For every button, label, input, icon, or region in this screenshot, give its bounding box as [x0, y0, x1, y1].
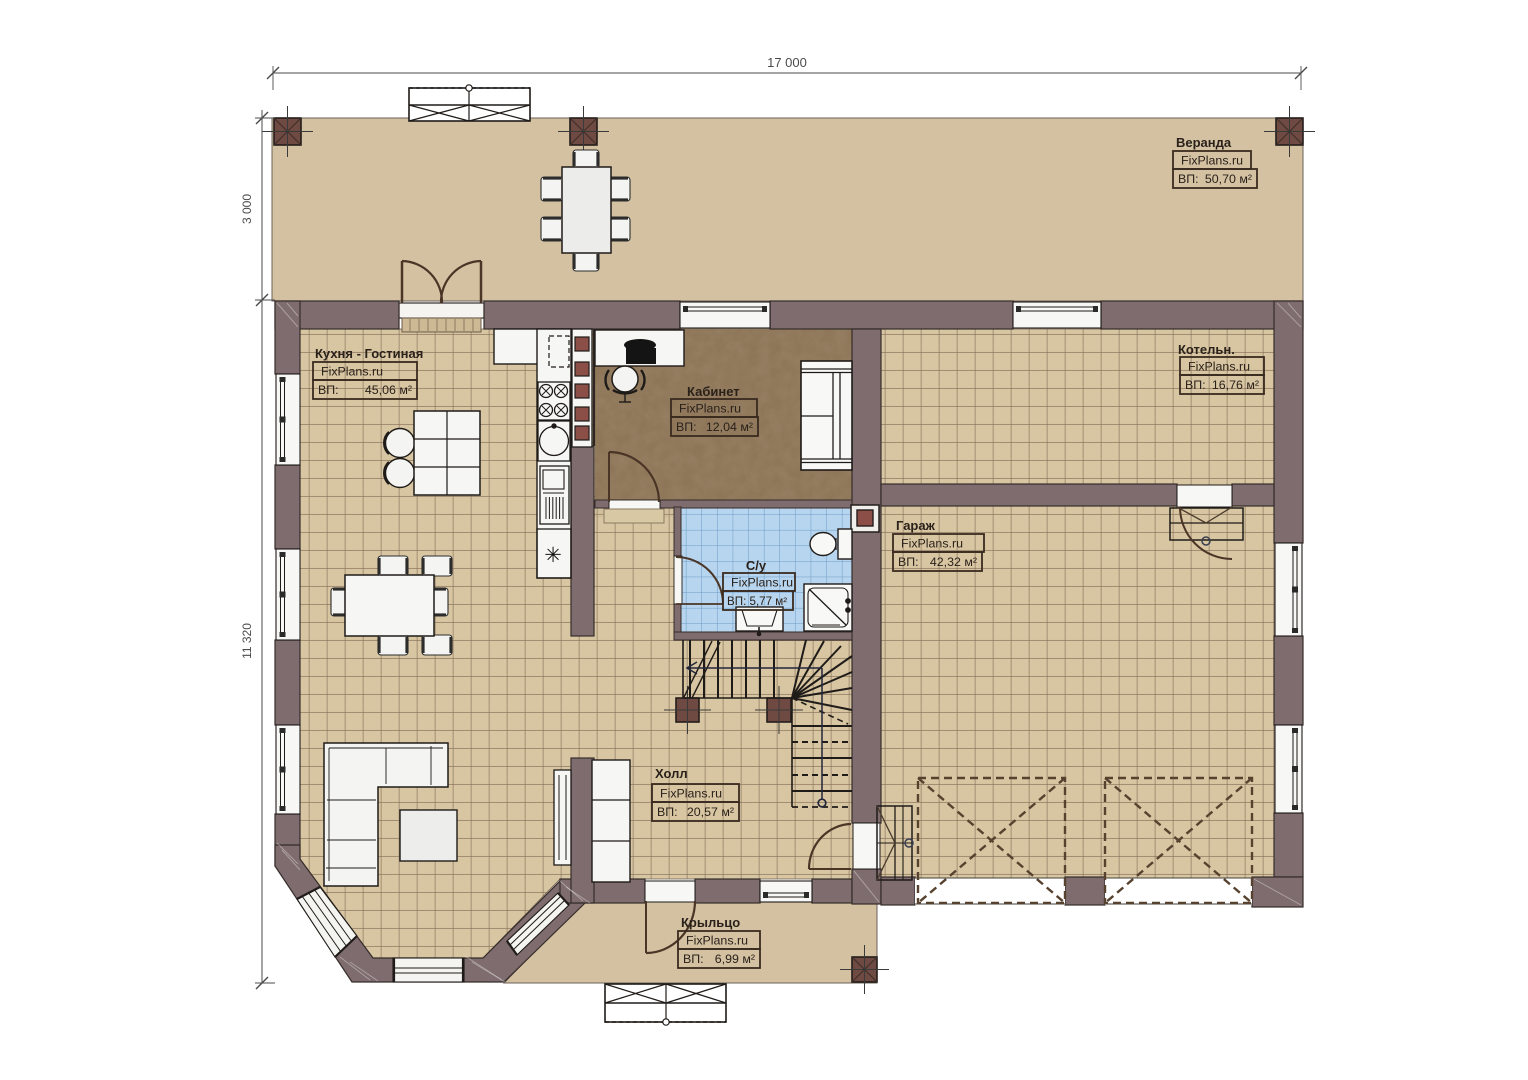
svg-text:16,76 м²: 16,76 м²	[1212, 378, 1259, 392]
svg-text:ВП:: ВП:	[657, 805, 678, 819]
svg-text:Крыльцо: Крыльцо	[681, 915, 740, 930]
svg-text:FixPlans.ru: FixPlans.ru	[660, 786, 722, 800]
svg-text:17 000: 17 000	[767, 55, 807, 70]
svg-text:✳: ✳	[544, 544, 562, 567]
svg-text:Веранда: Веранда	[1176, 135, 1232, 150]
svg-text:FixPlans.ru: FixPlans.ru	[901, 536, 963, 550]
svg-text:12,04 м²: 12,04 м²	[706, 420, 753, 434]
svg-text:FixPlans.ru: FixPlans.ru	[321, 364, 383, 378]
svg-text:45,06 м²: 45,06 м²	[365, 383, 412, 397]
svg-text:FixPlans.ru: FixPlans.ru	[1181, 153, 1243, 167]
svg-text:С/у: С/у	[746, 558, 767, 573]
svg-text:6,99 м²: 6,99 м²	[715, 952, 755, 966]
svg-text:Котельн.: Котельн.	[1178, 342, 1235, 357]
svg-text:ВП: 5,77 м²: ВП: 5,77 м²	[727, 595, 787, 608]
svg-text:ВП:: ВП:	[1185, 378, 1206, 392]
svg-text:FixPlans.ru: FixPlans.ru	[1188, 359, 1250, 373]
svg-text:ВП:: ВП:	[1178, 172, 1199, 186]
svg-text:FixPlans.ru: FixPlans.ru	[731, 575, 793, 589]
svg-text:Кабинет: Кабинет	[687, 384, 740, 399]
svg-text:ВП:: ВП:	[676, 420, 697, 434]
svg-text:ВП:: ВП:	[898, 555, 919, 569]
svg-text:FixPlans.ru: FixPlans.ru	[686, 933, 748, 947]
svg-text:42,32 м²: 42,32 м²	[930, 555, 977, 569]
svg-text:Кухня - Гостиная: Кухня - Гостиная	[315, 346, 423, 361]
svg-text:3 000: 3 000	[240, 194, 254, 224]
svg-text:FixPlans.ru: FixPlans.ru	[679, 401, 741, 415]
svg-text:50,70 м²: 50,70 м²	[1205, 172, 1252, 186]
svg-text:Холл: Холл	[655, 766, 688, 781]
svg-text:11 320: 11 320	[240, 623, 254, 659]
svg-text:Гараж: Гараж	[896, 518, 936, 533]
svg-text:ВП:: ВП:	[318, 383, 339, 397]
svg-text:20,57 м²: 20,57 м²	[687, 805, 734, 819]
svg-text:ВП:: ВП:	[683, 952, 704, 966]
